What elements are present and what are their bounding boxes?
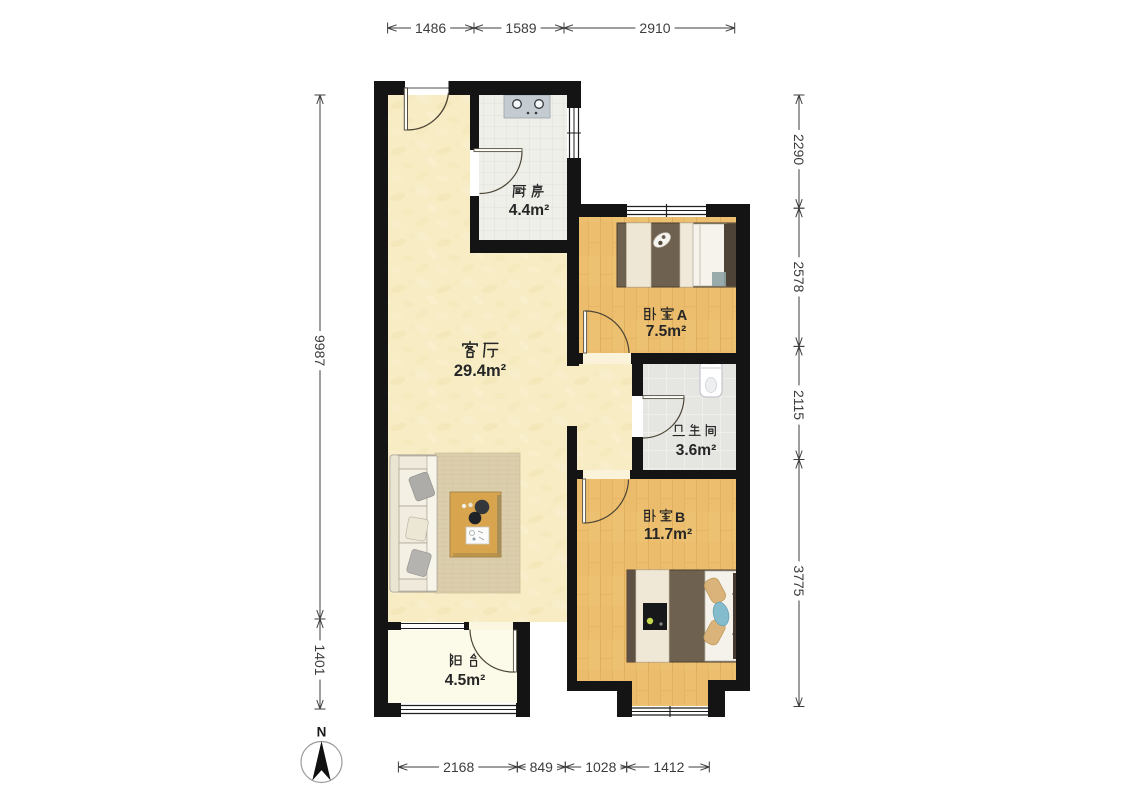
svg-text:4.5m²: 4.5m² (445, 672, 486, 689)
svg-text:7.5m²: 7.5m² (646, 323, 687, 340)
svg-text:A: A (677, 308, 688, 324)
svg-text:2290: 2290 (791, 134, 807, 165)
svg-text:2168: 2168 (443, 759, 474, 775)
svg-text:9987: 9987 (312, 335, 328, 366)
svg-text:3.6m²: 3.6m² (676, 442, 717, 459)
svg-text:1401: 1401 (312, 644, 328, 675)
svg-text:2578: 2578 (791, 261, 807, 292)
svg-text:1589: 1589 (505, 20, 536, 36)
svg-text:3775: 3775 (791, 565, 807, 596)
svg-text:2910: 2910 (639, 20, 670, 36)
svg-text:4.4m²: 4.4m² (509, 202, 550, 219)
svg-text:1486: 1486 (415, 20, 446, 36)
svg-text:B: B (675, 509, 685, 525)
svg-text:1028: 1028 (585, 759, 616, 775)
svg-text:2115: 2115 (791, 390, 807, 420)
svg-text:N: N (317, 725, 327, 740)
svg-text:849: 849 (530, 759, 554, 775)
svg-text:1412: 1412 (653, 759, 684, 775)
svg-text:29.4m²: 29.4m² (454, 362, 507, 380)
svg-text:11.7m²: 11.7m² (644, 526, 692, 543)
